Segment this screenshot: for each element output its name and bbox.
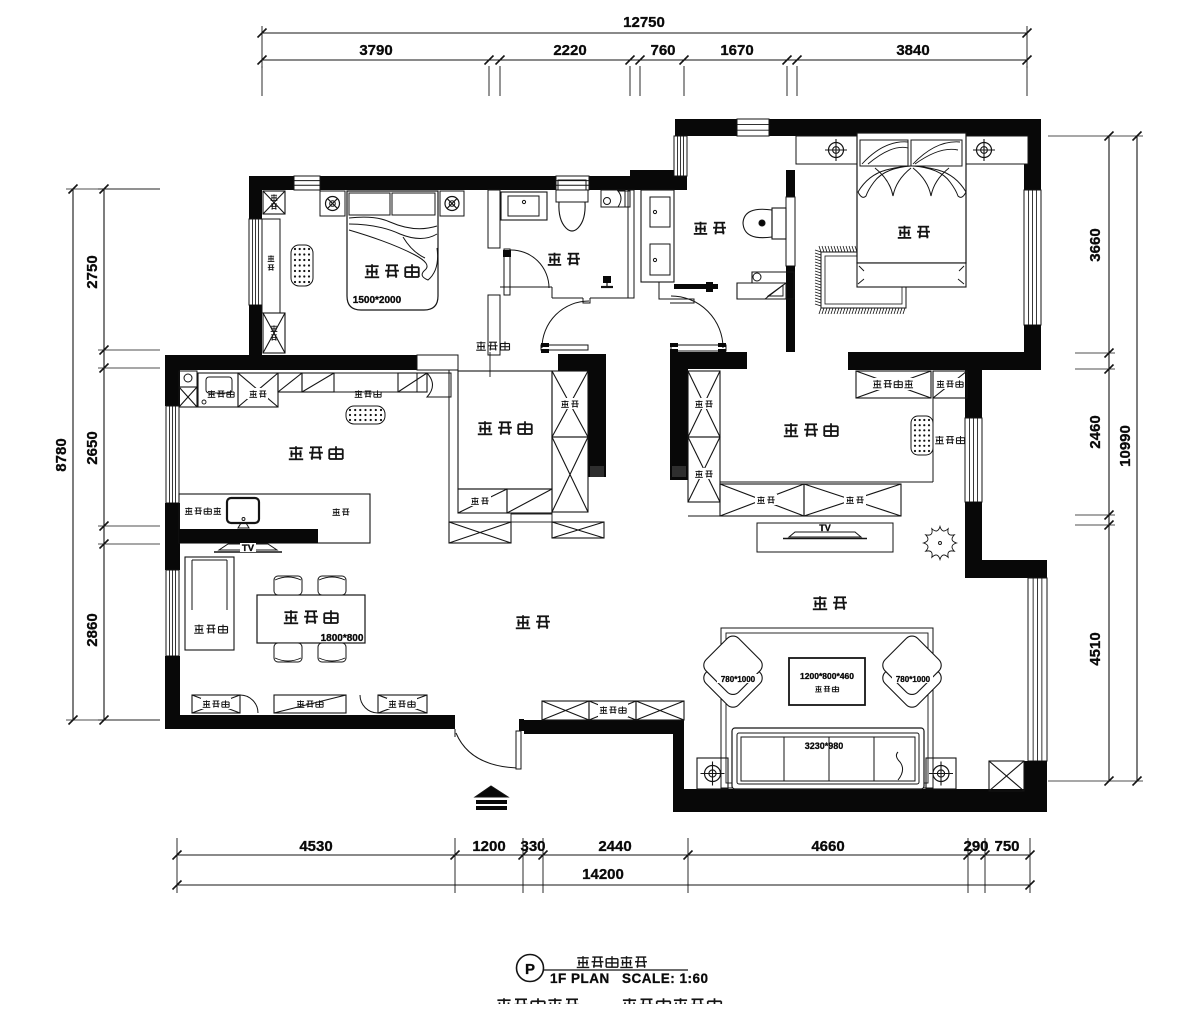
svg-text:2460: 2460 — [1087, 415, 1104, 448]
svg-text:760: 760 — [650, 42, 675, 59]
svg-text:1670: 1670 — [720, 42, 753, 59]
svg-text:3660: 3660 — [1087, 228, 1104, 261]
svg-text:2750: 2750 — [84, 255, 101, 288]
svg-text:1F PLAN: 1F PLAN — [550, 971, 610, 986]
svg-text:750: 750 — [994, 838, 1019, 855]
svg-text:12750: 12750 — [623, 14, 665, 31]
svg-text:TV: TV — [242, 543, 255, 554]
svg-text:2650: 2650 — [84, 431, 101, 464]
svg-text:4530: 4530 — [299, 838, 332, 855]
svg-text:1500*2000: 1500*2000 — [353, 295, 402, 306]
svg-text:3230*980: 3230*980 — [805, 741, 844, 751]
svg-text:8780: 8780 — [53, 438, 70, 471]
svg-text:780*1000: 780*1000 — [896, 675, 931, 684]
svg-text:TV: TV — [819, 523, 831, 533]
svg-text:1200*800*460: 1200*800*460 — [800, 671, 854, 681]
svg-text:P: P — [525, 961, 535, 978]
svg-text:780*1000: 780*1000 — [721, 675, 756, 684]
svg-text:4660: 4660 — [811, 838, 844, 855]
svg-text:4510: 4510 — [1087, 632, 1104, 665]
svg-text:2220: 2220 — [553, 42, 586, 59]
svg-text:2860: 2860 — [84, 613, 101, 646]
svg-text:330: 330 — [520, 838, 545, 855]
svg-text:290: 290 — [963, 838, 988, 855]
svg-text:SCALE: 1:60: SCALE: 1:60 — [622, 971, 709, 986]
svg-text:1800*800: 1800*800 — [321, 633, 364, 644]
svg-text:3840: 3840 — [896, 42, 929, 59]
svg-text:3790: 3790 — [359, 42, 392, 59]
svg-text:2440: 2440 — [598, 838, 631, 855]
svg-text:10990: 10990 — [1117, 425, 1134, 467]
svg-text:1200: 1200 — [472, 838, 505, 855]
svg-text:14200: 14200 — [582, 866, 624, 883]
